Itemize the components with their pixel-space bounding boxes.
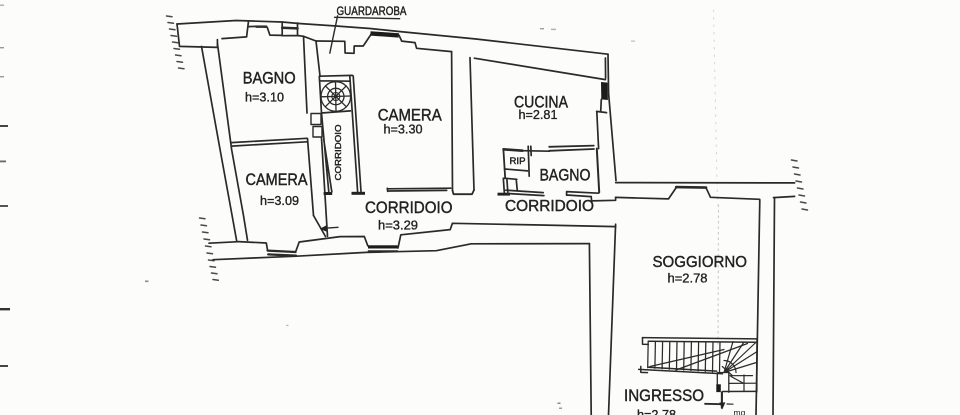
- svg-text:CAMERA: CAMERA: [246, 171, 308, 189]
- svg-text:RIP: RIP: [510, 156, 526, 167]
- svg-text:h=2.78: h=2.78: [668, 271, 708, 286]
- svg-text:GUARDAROBA: GUARDAROBA: [337, 6, 407, 18]
- svg-text:h=3.10: h=3.10: [245, 90, 284, 105]
- svg-text:h=3.30: h=3.30: [384, 122, 423, 137]
- svg-text:h=3.09: h=3.09: [260, 193, 299, 208]
- svg-text:SOGGIORNO: SOGGIORNO: [653, 254, 748, 271]
- svg-text:BAGNO: BAGNO: [243, 70, 296, 88]
- svg-text:INGRESSO: INGRESSO: [624, 387, 704, 405]
- svg-text:BAGNO: BAGNO: [540, 167, 591, 185]
- svg-text:h=2.78: h=2.78: [637, 407, 676, 415]
- svg-text:h=3.29: h=3.29: [378, 217, 418, 232]
- svg-text:CORRIDOIO: CORRIDOIO: [505, 198, 594, 215]
- svg-text:CORRIDOIO: CORRIDOIO: [333, 124, 343, 180]
- svg-text:mq: mq: [734, 408, 746, 415]
- svg-text:CORRIDOIO: CORRIDOIO: [365, 199, 453, 217]
- svg-text:h=2.81: h=2.81: [519, 108, 558, 122]
